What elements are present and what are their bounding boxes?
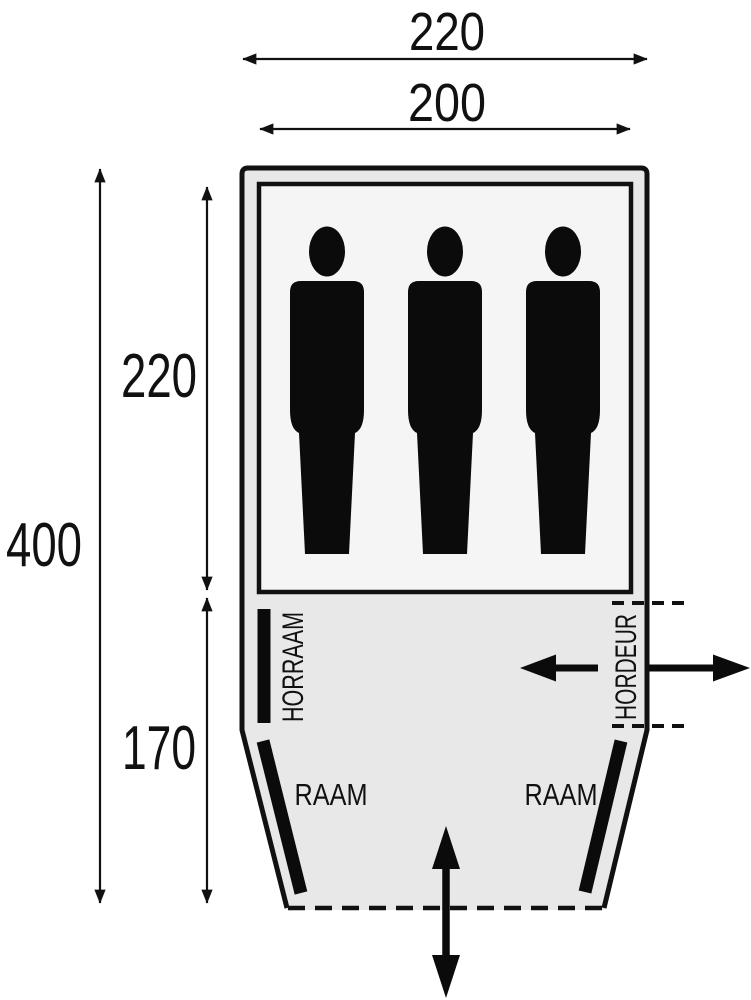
raam-right-label: RAAM [525,777,598,812]
dim-label-total-depth: 400 [6,511,82,580]
dim-label-cabin-depth: 220 [121,342,197,411]
dim-label-inner-width: 200 [408,73,486,133]
horraam-window-bar [258,609,271,723]
dim-label-porch-depth: 170 [122,714,196,783]
floorplan-svg: HORRAAM HORDEUR RAAM RAAM [0,0,751,1000]
horraam-label: HORRAAM [277,612,310,722]
hordeur-label: HORDEUR [610,614,643,720]
tent-floorplan-diagram: HORRAAM HORDEUR RAAM RAAM [0,0,751,1000]
raam-left-label: RAAM [295,777,368,812]
door-out-arrow-icon [649,655,750,682]
dim-label-outer-width: 220 [409,2,485,62]
